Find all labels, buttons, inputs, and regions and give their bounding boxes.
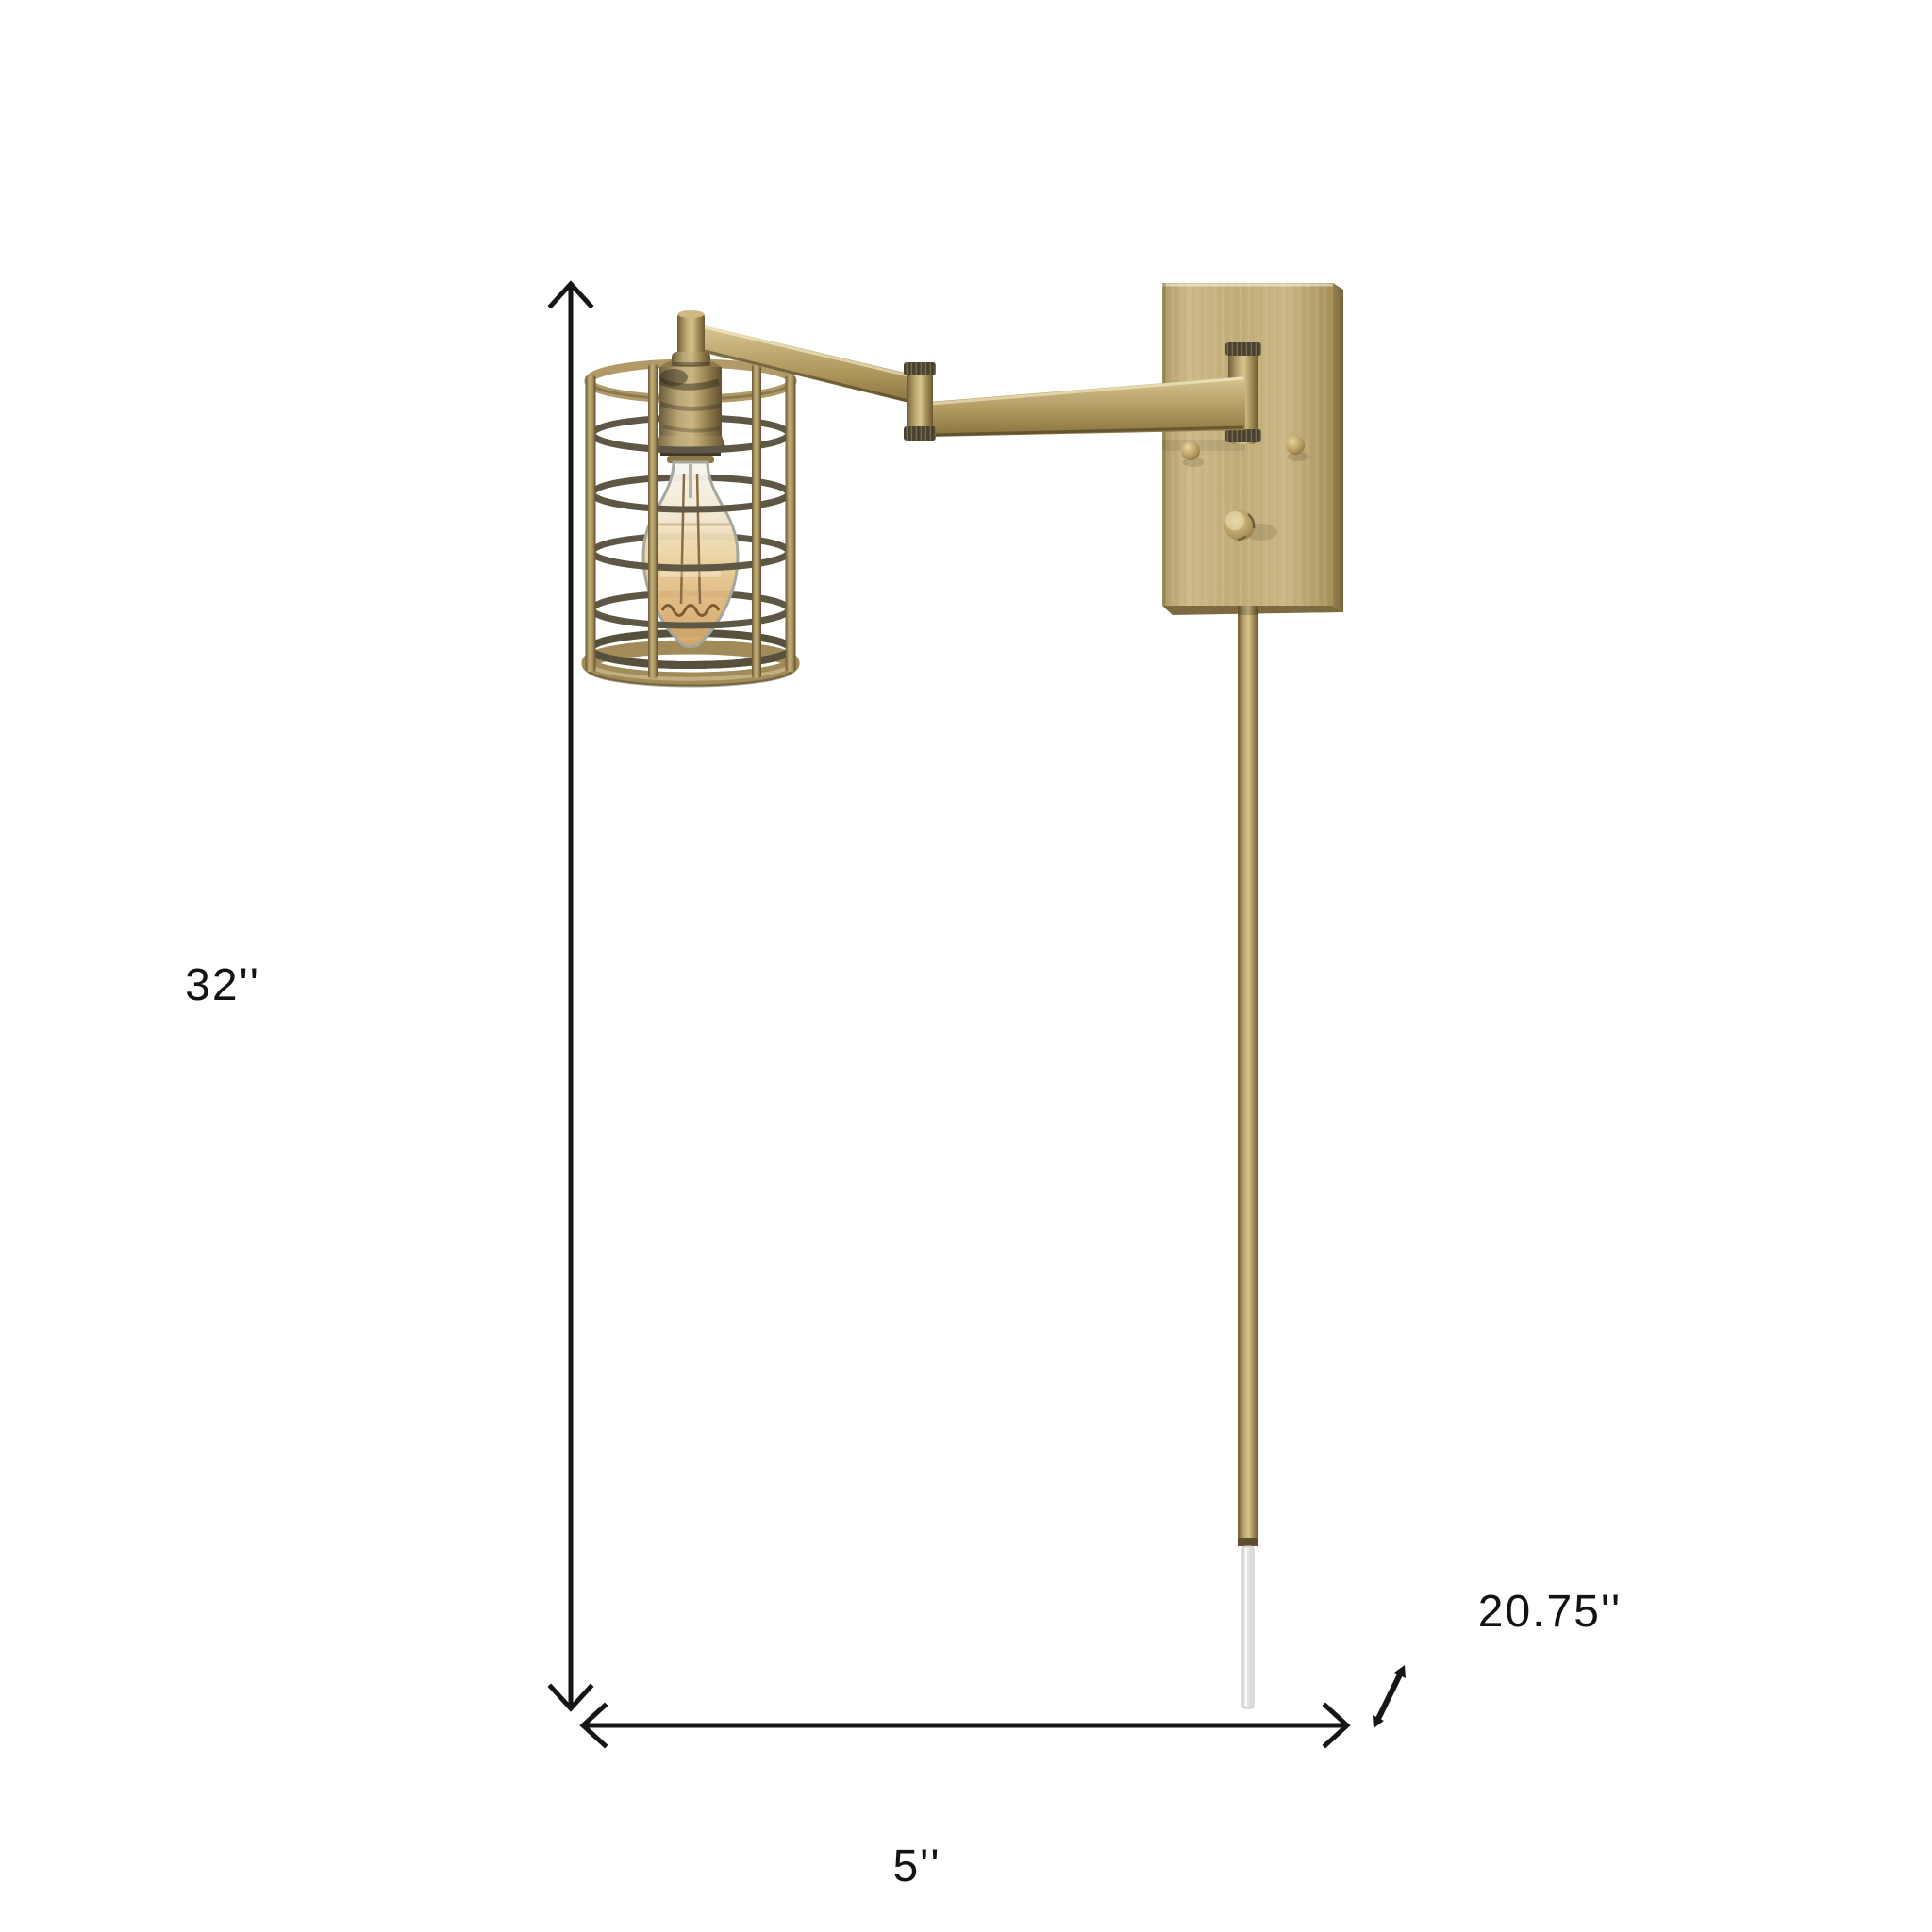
height-dimension-label: 32'' [185,963,260,1008]
cord-dimension-label: 20.75'' [1478,1590,1622,1635]
shade-stem [672,310,710,366]
power-cord [1242,1546,1254,1708]
width-dimension-label: 5'' [892,1844,941,1890]
width-dimension-arrow [583,1706,1347,1745]
height-dimension-arrow [551,284,591,1708]
sconce-illustration [0,0,1932,1932]
cord-dimension-arrow [1373,1665,1406,1728]
product-dimension-figure: 32'' 5'' 20.75'' [0,0,1932,1932]
swing-arm-elbow-joint [904,362,936,441]
downrod [1238,606,1258,1546]
